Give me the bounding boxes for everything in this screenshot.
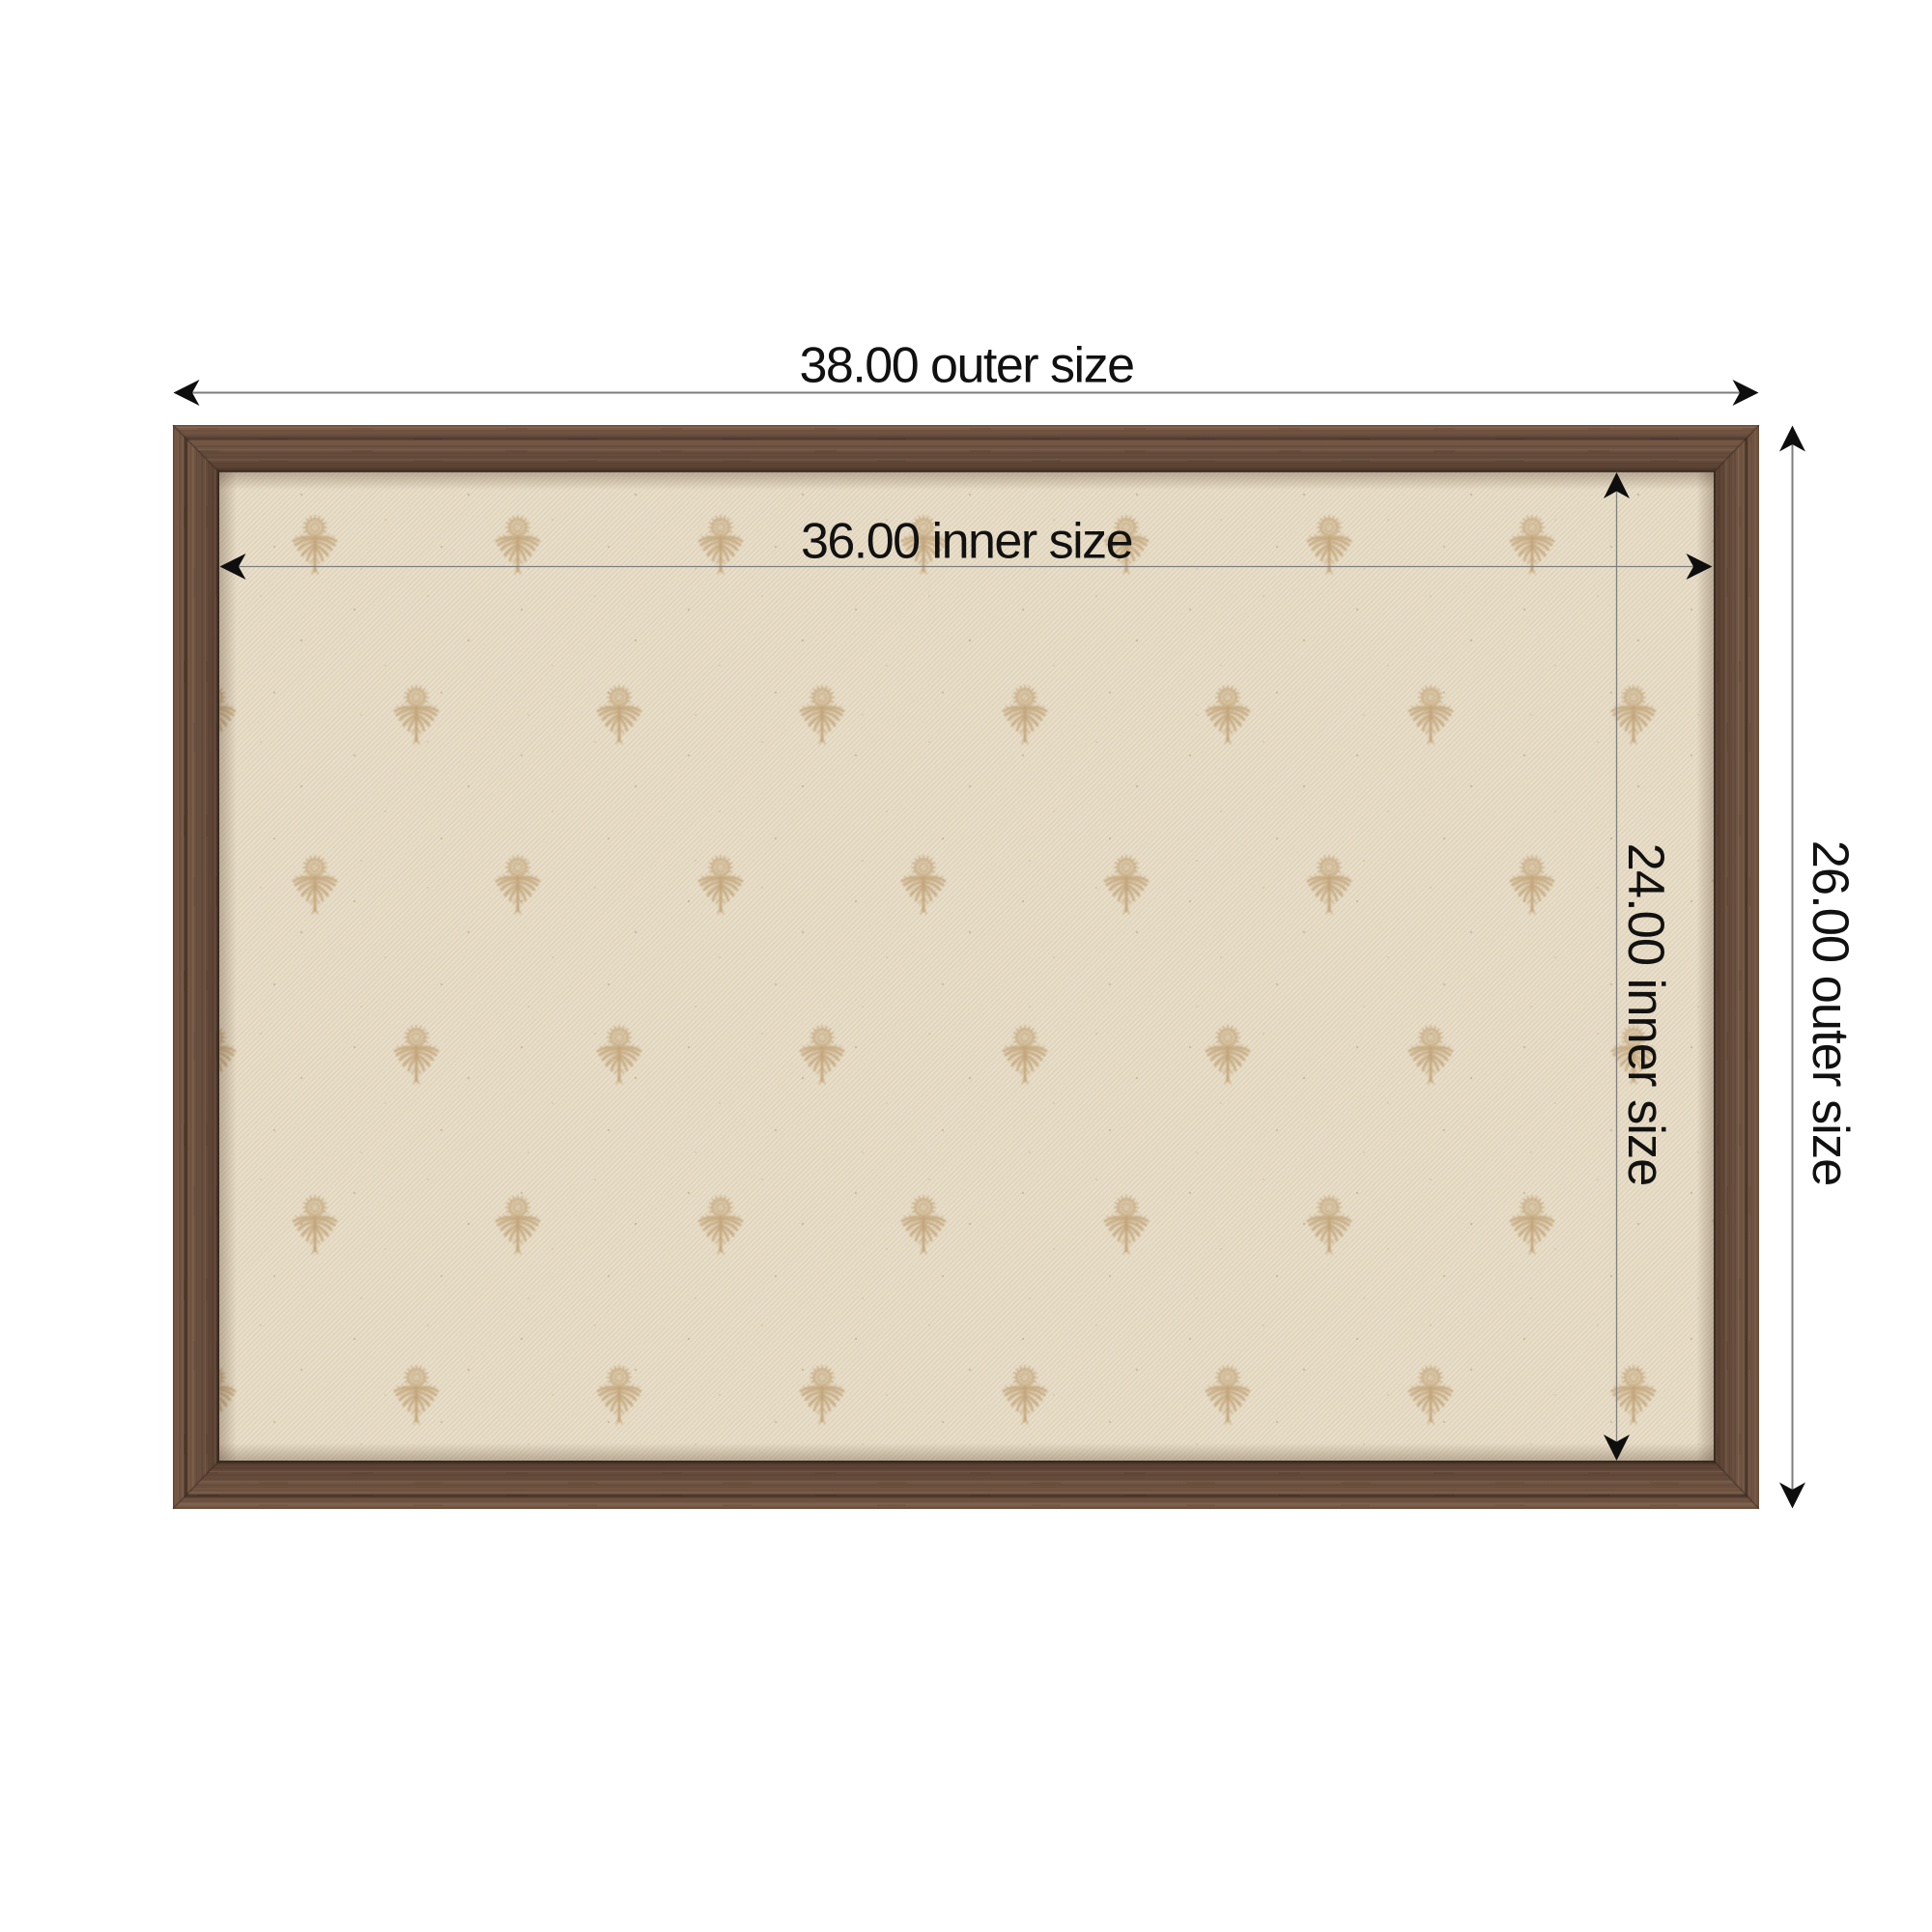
svg-text:26.00 outer size: 26.00 outer size [1802, 840, 1859, 1186]
svg-text:36.00 inner size: 36.00 inner size [801, 514, 1132, 570]
svg-text:38.00 outer size: 38.00 outer size [799, 338, 1133, 394]
svg-text:24.00 inner size: 24.00 inner size [1617, 843, 1674, 1186]
